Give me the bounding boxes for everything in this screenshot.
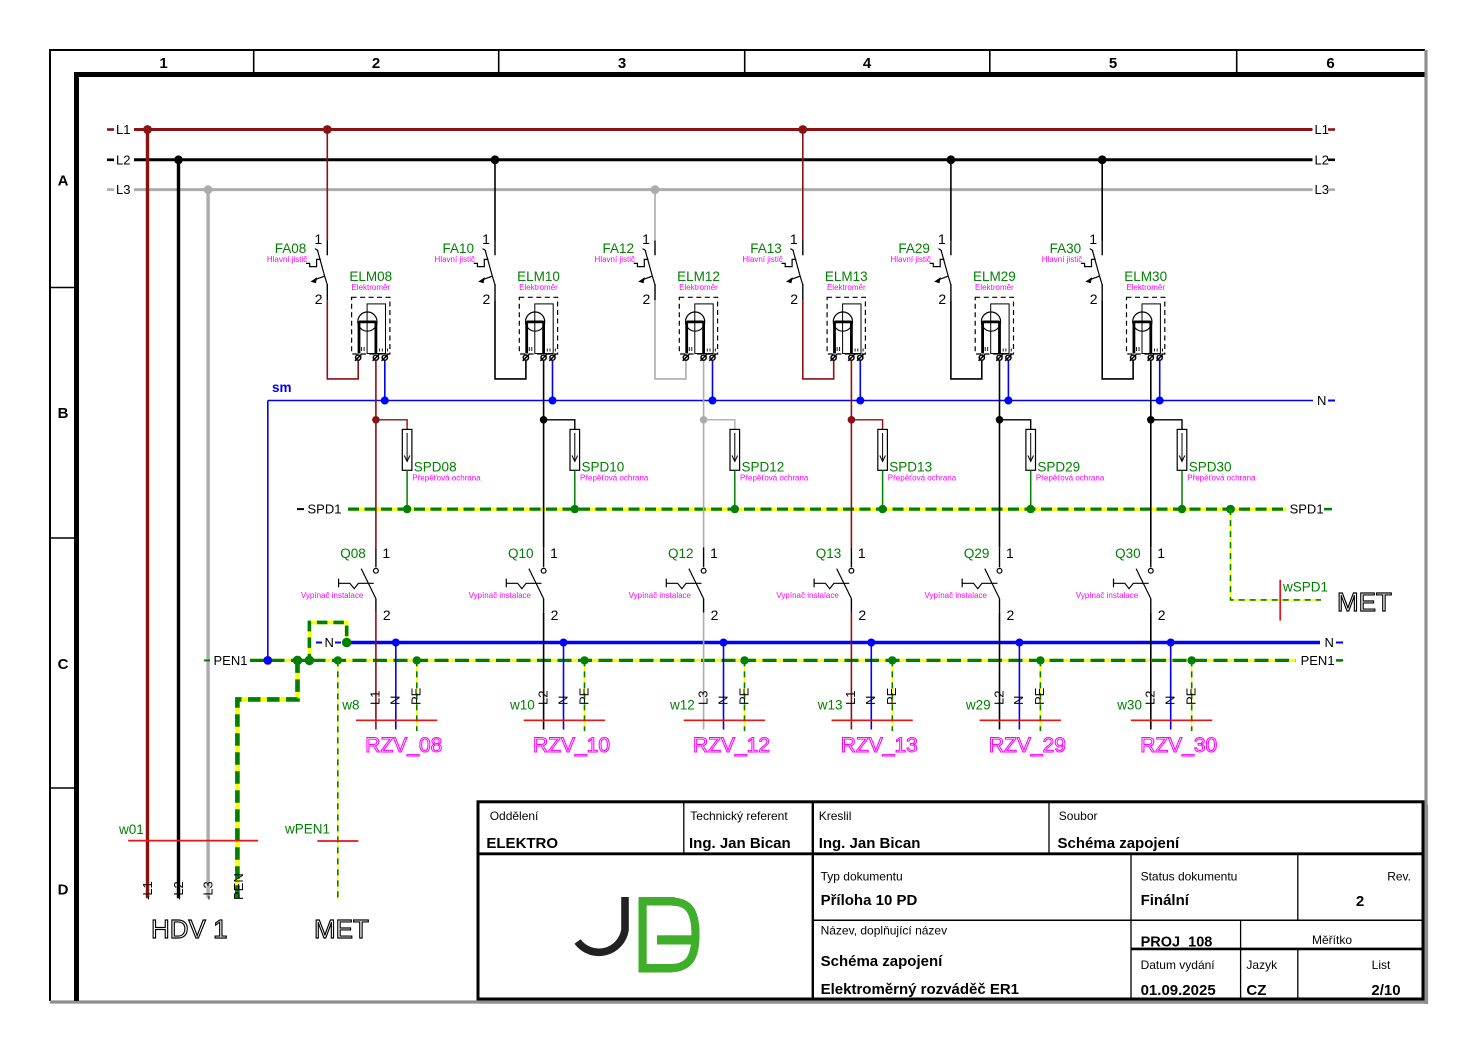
svg-text:ELM30: ELM30 [1124, 269, 1167, 284]
svg-text:Hlavní jistič: Hlavní jistič [1042, 255, 1082, 264]
svg-text:sm: sm [272, 380, 292, 395]
svg-text:2: 2 [711, 607, 719, 623]
svg-text:6: 6 [1326, 55, 1334, 72]
svg-text:Q10: Q10 [508, 546, 534, 561]
svg-text:3: 3 [618, 55, 626, 72]
svg-text:w12: w12 [669, 698, 695, 713]
svg-text:w10: w10 [509, 698, 535, 713]
svg-text:Q29: Q29 [964, 546, 990, 561]
svg-text:Vypínač instalace: Vypínač instalace [924, 591, 987, 600]
svg-text:2/10: 2/10 [1371, 982, 1400, 999]
svg-text:FA30: FA30 [1050, 241, 1082, 256]
svg-text:Přepěťová ochrana: Přepěťová ochrana [412, 474, 481, 483]
svg-text:L1: L1 [1315, 122, 1329, 137]
svg-text:Přepěťová ochrana: Přepěťová ochrana [580, 474, 649, 483]
svg-text:wPEN1: wPEN1 [284, 822, 330, 837]
svg-text:MET: MET [314, 914, 369, 944]
svg-text:Hlavní jistič: Hlavní jistič [267, 255, 307, 264]
svg-text:ELEKTRO: ELEKTRO [486, 835, 558, 852]
svg-text:A: A [58, 173, 69, 190]
svg-text:N: N [1163, 696, 1178, 705]
svg-text:SPD30: SPD30 [1189, 460, 1232, 475]
svg-text:Q30: Q30 [1115, 546, 1141, 561]
svg-text:1: 1 [938, 231, 946, 247]
svg-text:SPD08: SPD08 [414, 460, 457, 475]
svg-text:N: N [863, 696, 878, 705]
svg-text:L2: L2 [1143, 691, 1158, 705]
svg-text:ELM10: ELM10 [517, 269, 560, 284]
svg-text:PE: PE [1032, 687, 1047, 705]
svg-text:2: 2 [483, 291, 491, 307]
svg-text:Hlavní jistič: Hlavní jistič [742, 255, 782, 264]
svg-text:Název, doplňující název: Název, doplňující název [821, 924, 948, 938]
svg-text:FA10: FA10 [442, 241, 474, 256]
svg-text:Elektroměr: Elektroměr [679, 283, 718, 292]
svg-text:Hlavní jistič: Hlavní jistič [890, 255, 930, 264]
svg-text:Elektroměr: Elektroměr [975, 283, 1014, 292]
svg-text:1: 1 [1089, 231, 1097, 247]
svg-text:MET: MET [1337, 587, 1392, 617]
svg-text:CZ: CZ [1246, 982, 1266, 999]
svg-text:2: 2 [938, 291, 946, 307]
svg-text:List: List [1372, 958, 1391, 972]
svg-text:1: 1 [790, 231, 798, 247]
svg-text:L3: L3 [695, 691, 710, 705]
svg-text:2: 2 [1090, 291, 1098, 307]
svg-text:01.09.2025: 01.09.2025 [1141, 982, 1216, 999]
svg-text:Přepěťová ochrana: Přepěťová ochrana [888, 474, 957, 483]
svg-text:N: N [1011, 696, 1026, 705]
svg-text:w30: w30 [1116, 698, 1142, 713]
svg-text:Elektroměrný rozváděč ER1: Elektroměrný rozváděč ER1 [821, 981, 1019, 998]
svg-text:2: 2 [372, 55, 380, 72]
svg-text:Schéma zapojení: Schéma zapojení [1058, 835, 1181, 852]
svg-text:w13: w13 [817, 698, 843, 713]
svg-text:L3: L3 [116, 182, 130, 197]
svg-text:ELM13: ELM13 [825, 269, 868, 284]
svg-text:L2: L2 [991, 691, 1006, 705]
svg-text:Soubor: Soubor [1059, 809, 1098, 823]
svg-text:N: N [325, 635, 334, 650]
svg-text:Q08: Q08 [340, 546, 366, 561]
svg-text:PE: PE [884, 687, 899, 705]
svg-text:Elektroměr: Elektroměr [1126, 283, 1165, 292]
svg-text:N: N [1325, 635, 1334, 650]
svg-text:Ing. Jan Bican: Ing. Jan Bican [819, 835, 921, 852]
svg-text:Status dokumentu: Status dokumentu [1141, 870, 1238, 884]
svg-text:RZV_12: RZV_12 [693, 734, 770, 757]
svg-text:L2: L2 [535, 691, 550, 705]
svg-text:PE: PE [576, 687, 591, 705]
svg-text:PE: PE [1184, 687, 1199, 705]
svg-text:wSPD1: wSPD1 [1282, 580, 1328, 595]
svg-text:Jazyk: Jazyk [1246, 958, 1278, 972]
svg-text:N: N [715, 696, 730, 705]
svg-text:2: 2 [383, 607, 391, 623]
svg-text:-L1: -L1 [140, 881, 155, 900]
svg-text:SPD1: SPD1 [1290, 502, 1324, 517]
svg-text:HDV 1: HDV 1 [151, 914, 228, 944]
svg-text:1: 1 [1157, 545, 1165, 561]
svg-text:Přepěťová ochrana: Přepěťová ochrana [1036, 474, 1105, 483]
svg-text:1: 1 [159, 55, 167, 72]
svg-text:Typ dokumentu: Typ dokumentu [821, 870, 903, 884]
svg-text:Přepěťová ochrana: Přepěťová ochrana [740, 474, 809, 483]
svg-text:2: 2 [1356, 893, 1364, 910]
svg-text:L1: L1 [368, 691, 383, 705]
svg-text:1: 1 [314, 231, 322, 247]
svg-text:Přepěťová ochrana: Přepěťová ochrana [1187, 474, 1256, 483]
svg-text:1: 1 [1006, 545, 1014, 561]
svg-text:1: 1 [550, 545, 558, 561]
svg-text:ELM29: ELM29 [973, 269, 1016, 284]
svg-text:Datum vydání: Datum vydání [1141, 958, 1216, 972]
svg-text:4: 4 [863, 55, 872, 72]
svg-text:Kreslil: Kreslil [819, 809, 852, 823]
svg-text:Oddělení: Oddělení [490, 809, 539, 823]
svg-text:Vypínač instalace: Vypínač instalace [1076, 591, 1139, 600]
svg-text:PEN: PEN [231, 873, 246, 900]
svg-text:1: 1 [642, 231, 650, 247]
svg-text:L2: L2 [1315, 152, 1329, 167]
svg-text:SPD12: SPD12 [742, 460, 785, 475]
svg-text:2: 2 [551, 607, 559, 623]
svg-text:FA29: FA29 [898, 241, 930, 256]
svg-text:Vypínač instalace: Vypínač instalace [629, 591, 692, 600]
svg-text:Schéma zapojení: Schéma zapojení [821, 953, 944, 970]
svg-text:FA08: FA08 [275, 241, 307, 256]
svg-text:SPD10: SPD10 [582, 460, 625, 475]
svg-text:N: N [388, 696, 403, 705]
svg-text:2: 2 [643, 291, 651, 307]
svg-text:PEN1: PEN1 [1301, 653, 1335, 668]
svg-text:Elektroměr: Elektroměr [827, 283, 866, 292]
svg-text:PROJ_108: PROJ_108 [1141, 935, 1213, 951]
svg-text:w8: w8 [341, 698, 359, 713]
svg-text:SPD29: SPD29 [1037, 460, 1080, 475]
svg-text:2: 2 [1007, 607, 1015, 623]
svg-text:Vypínač instalace: Vypínač instalace [301, 591, 364, 600]
svg-text:Elektroměr: Elektroměr [519, 283, 558, 292]
svg-text:Vypínač instalace: Vypínač instalace [776, 591, 839, 600]
svg-text:RZV_30: RZV_30 [1140, 734, 1217, 757]
svg-text:2: 2 [1158, 607, 1166, 623]
svg-text:PE: PE [736, 687, 751, 705]
svg-text:RZV_13: RZV_13 [841, 734, 918, 757]
svg-text:5: 5 [1109, 55, 1117, 72]
svg-text:-L2: -L2 [171, 881, 186, 900]
svg-text:L2: L2 [116, 152, 130, 167]
svg-text:-L3: -L3 [201, 881, 216, 900]
svg-text:2: 2 [858, 607, 866, 623]
svg-text:ELM08: ELM08 [349, 269, 392, 284]
svg-text:1: 1 [382, 545, 390, 561]
svg-text:Technický referent: Technický referent [690, 809, 788, 823]
svg-text:FA12: FA12 [602, 241, 634, 256]
svg-text:w29: w29 [965, 698, 991, 713]
svg-text:Q13: Q13 [816, 546, 842, 561]
svg-text:RZV_08: RZV_08 [365, 734, 442, 757]
svg-text:Hlavní jistič: Hlavní jistič [595, 255, 635, 264]
svg-text:ELM12: ELM12 [677, 269, 720, 284]
svg-text:Vypínač instalace: Vypínač instalace [469, 591, 532, 600]
svg-text:Hlavní jistič: Hlavní jistič [435, 255, 475, 264]
svg-text:1: 1 [482, 231, 490, 247]
svg-text:SPD13: SPD13 [889, 460, 932, 475]
svg-text:Finální: Finální [1141, 892, 1190, 909]
svg-text:w01: w01 [118, 822, 144, 837]
svg-text:C: C [58, 656, 69, 673]
svg-text:Ing. Jan Bican: Ing. Jan Bican [689, 835, 791, 852]
svg-text:Elektroměr: Elektroměr [351, 283, 390, 292]
svg-text:SPD1: SPD1 [308, 502, 342, 517]
svg-text:B: B [58, 405, 69, 422]
svg-text:N: N [1317, 393, 1326, 408]
svg-text:Q12: Q12 [668, 546, 694, 561]
svg-text:D: D [58, 882, 69, 899]
svg-text:L1: L1 [843, 691, 858, 705]
svg-text:L3: L3 [1315, 182, 1329, 197]
svg-text:Rev.: Rev. [1387, 870, 1411, 884]
svg-text:2: 2 [315, 291, 323, 307]
svg-text:1: 1 [710, 545, 718, 561]
svg-text:Měřítko: Měřítko [1312, 933, 1352, 947]
svg-text:1: 1 [858, 545, 866, 561]
svg-text:RZV_10: RZV_10 [533, 734, 610, 757]
svg-text:Příloha 10 PD: Příloha 10 PD [821, 892, 918, 909]
svg-text:FA13: FA13 [750, 241, 782, 256]
svg-text:2: 2 [790, 291, 798, 307]
svg-text:RZV_29: RZV_29 [989, 734, 1066, 757]
svg-text:PE: PE [409, 687, 424, 705]
svg-text:N: N [555, 696, 570, 705]
svg-text:L1: L1 [116, 122, 130, 137]
svg-text:PEN1: PEN1 [214, 653, 248, 668]
